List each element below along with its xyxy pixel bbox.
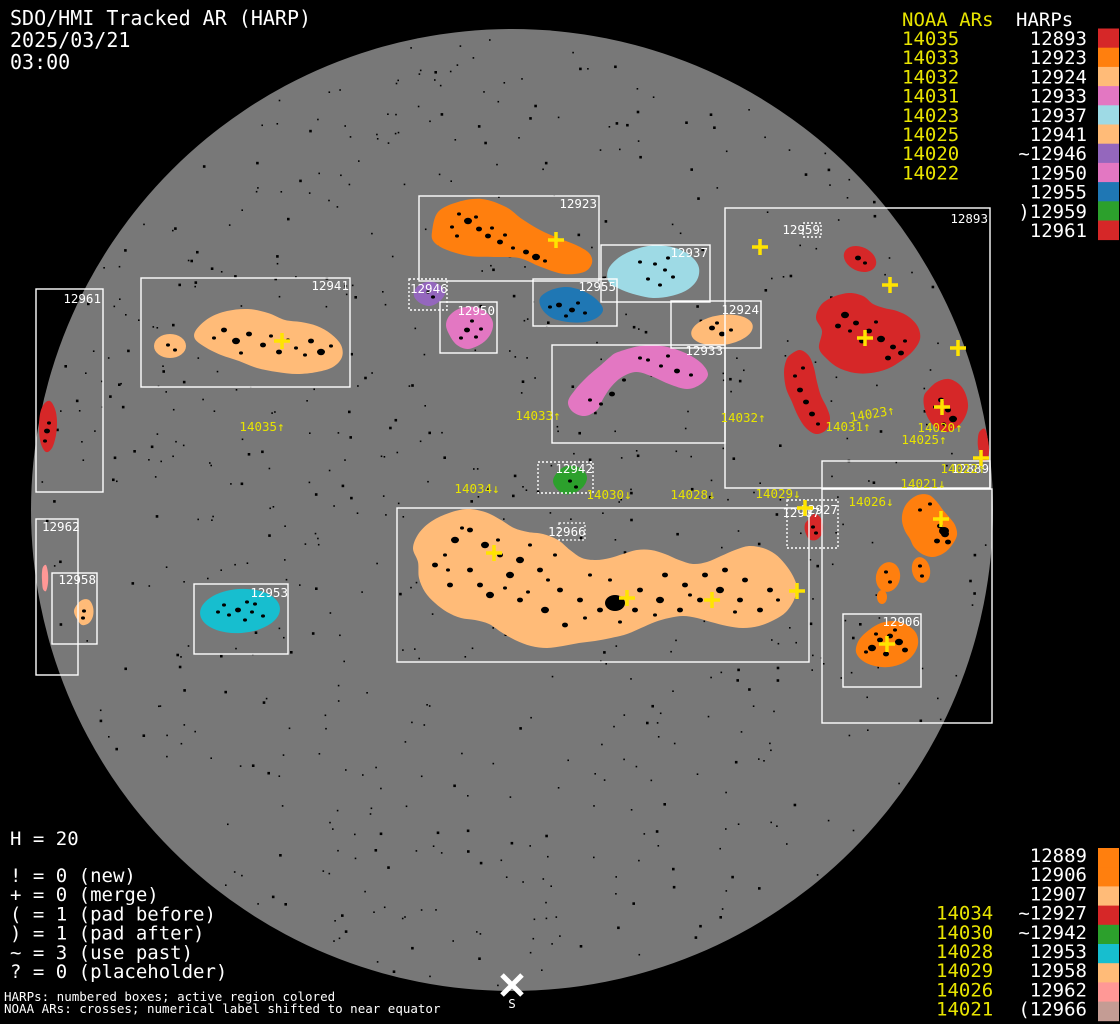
sunspot [803,400,809,405]
magnetogram-speckle [235,648,237,650]
magnetogram-speckle [636,766,638,768]
sunspot [658,283,662,286]
magnetogram-speckle [675,640,677,642]
magnetogram-speckle [184,724,186,726]
magnetogram-speckle [385,304,387,306]
magnetogram-speckle [354,296,357,299]
magnetogram-speckle [427,481,429,483]
magnetogram-speckle [937,698,939,700]
page-title: SDO/HMI Tracked AR (HARP) [10,6,311,30]
magnetogram-speckle [685,121,688,124]
magnetogram-speckle [183,581,185,583]
sunspot [656,597,664,603]
magnetogram-speckle [283,754,285,756]
magnetogram-speckle [257,187,259,189]
magnetogram-speckle [713,126,716,129]
magnetogram-speckle [317,538,319,540]
magnetogram-speckle [578,234,581,237]
magnetogram-speckle [876,594,878,596]
magnetogram-speckle [53,500,56,503]
magnetogram-speckle [439,174,441,176]
magnetogram-speckle [541,969,543,971]
sunspot [737,598,743,603]
magnetogram-speckle [637,455,640,458]
magnetogram-speckle [384,456,386,458]
sunspot [638,260,642,263]
sunspot [548,305,552,308]
magnetogram-speckle [198,357,200,359]
magnetogram-speckle [645,331,648,334]
magnetogram-speckle [483,91,485,93]
magnetogram-speckle [831,476,833,478]
magnetogram-speckle [841,677,843,679]
magnetogram-speckle [364,891,366,893]
magnetogram-speckle [866,697,868,699]
legend-swatch-12959 [1098,201,1119,221]
harp-box-label-12955: 12955 [578,279,616,294]
magnetogram-speckle [475,350,477,352]
sunspot [809,412,815,417]
magnetogram-speckle [593,805,595,807]
magnetogram-speckle [60,410,62,412]
magnetogram-speckle [837,496,839,498]
magnetogram-speckle [851,672,853,674]
magnetogram-speckle [404,916,406,918]
sunspot [638,356,642,359]
magnetogram-speckle [212,516,214,518]
magnetogram-speckle [800,533,802,535]
magnetogram-speckle [323,870,325,872]
magnetogram-speckle [115,748,118,751]
magnetogram-speckle [735,761,738,764]
legend-swatch-12958 [1098,963,1119,983]
sunspot [569,308,575,313]
magnetogram-speckle [697,197,700,200]
magnetogram-speckle [76,400,79,403]
magnetogram-speckle [767,211,769,213]
sunspot [890,345,896,350]
sunspot [646,277,650,280]
magnetogram-speckle [64,365,67,368]
harp-box-label-12966: 12966 [548,524,586,539]
magnetogram-speckle [334,920,336,922]
sunspot [481,542,489,548]
magnetogram-speckle [859,623,862,626]
magnetogram-speckle [605,663,607,665]
magnetogram-speckle [220,655,223,658]
magnetogram-speckle [114,306,116,308]
sunspot [553,553,557,556]
magnetogram-speckle [272,896,275,899]
magnetogram-speckle [287,218,290,221]
sunspot [517,598,523,603]
magnetogram-speckle [277,123,279,125]
magnetogram-speckle [470,500,473,503]
magnetogram-speckle [395,114,397,116]
magnetogram-speckle [127,350,130,353]
magnetogram-speckle [594,412,597,415]
magnetogram-speckle [467,830,470,833]
magnetogram-speckle [398,132,400,134]
sunspot [608,578,612,581]
sunspot [523,250,529,255]
magnetogram-speckle [411,722,413,724]
magnetogram-speckle [284,525,286,527]
noaa-ar-label-14034: 14034↓ [454,481,499,496]
magnetogram-speckle [543,878,545,880]
magnetogram-speckle [898,783,900,785]
magnetogram-speckle [183,445,185,447]
magnetogram-speckle [399,593,402,596]
sunspot [609,392,615,397]
magnetogram-speckle [268,534,271,537]
sunspot [537,568,543,573]
sunspot [574,485,578,488]
magnetogram-speckle [711,480,713,482]
magnetogram-speckle [409,385,411,387]
magnetogram-speckle [157,327,159,329]
magnetogram-speckle [371,233,373,235]
magnetogram-speckle [124,668,127,671]
sunspot [212,336,216,339]
magnetogram-speckle [42,481,44,483]
sunspot [450,225,454,228]
magnetogram-speckle [388,142,390,144]
magnetogram-speckle [480,933,482,935]
noaa-ar-label-14033: 14033↑ [515,408,560,423]
magnetogram-speckle [876,385,878,387]
sunspot [47,421,51,424]
magnetogram-speckle [534,919,536,921]
magnetogram-speckle [116,481,118,483]
legend-swatch-12950 [1098,163,1119,183]
magnetogram-speckle [530,952,532,954]
magnetogram-speckle [725,828,727,830]
magnetogram-speckle [240,765,242,767]
magnetogram-speckle [349,436,352,439]
magnetogram-speckle [429,976,431,978]
magnetogram-speckle [729,378,732,381]
magnetogram-speckle [425,229,427,231]
legend-swatch-12889 [1098,848,1119,868]
sunspot [476,227,482,232]
magnetogram-speckle [506,876,508,878]
magnetogram-speckle [489,39,491,41]
magnetogram-speckle [85,372,87,374]
sunspot [709,326,715,331]
magnetogram-speckle [149,585,151,587]
magnetogram-speckle [603,651,606,654]
magnetogram-speckle [853,830,855,832]
sunspot [715,321,719,324]
harp-box-label-12958: 12958 [58,572,96,587]
magnetogram-speckle [524,320,526,322]
magnetogram-speckle [503,518,505,520]
magnetogram-speckle [364,377,367,380]
magnetogram-speckle [637,88,639,90]
magnetogram-speckle [313,389,315,391]
magnetogram-speckle [831,400,833,402]
sunspot [82,609,86,612]
magnetogram-speckle [337,810,339,812]
magnetogram-speckle [405,741,407,743]
magnetogram-speckle [478,957,481,960]
sunspot [939,527,949,535]
magnetogram-speckle [349,184,351,186]
sunspot [261,614,265,617]
magnetogram-speckle [380,833,383,836]
sunspot [564,314,568,317]
magnetogram-speckle [269,508,271,510]
magnetogram-speckle [211,519,213,521]
magnetogram-speckle [605,220,608,223]
magnetogram-speckle [676,451,678,453]
sunspot [884,570,888,573]
magnetogram-speckle [551,465,553,467]
magnetogram-speckle [103,267,105,269]
magnetogram-speckle [241,305,243,307]
magnetogram-speckle [726,151,728,153]
magnetogram-speckle [550,512,552,514]
sunspot [835,324,841,329]
sunspot [546,578,550,581]
magnetogram-speckle [812,598,814,600]
magnetogram-speckle [162,370,165,373]
noaa-ar-label-14021: 14021↓ [900,476,945,491]
magnetogram-speckle [845,620,847,622]
magnetogram-speckle [557,426,559,428]
magnetogram-speckle [810,559,812,561]
magnetogram-speckle [783,276,785,278]
magnetogram-speckle [815,361,817,363]
magnetogram-speckle [221,271,223,273]
magnetogram-speckle [771,278,773,280]
magnetogram-speckle [578,432,581,435]
magnetogram-speckle [217,371,219,373]
magnetogram-speckle [416,582,418,584]
magnetogram-speckle [593,857,595,859]
magnetogram-speckle [721,672,723,674]
magnetogram-speckle [670,651,672,653]
sunspot [801,366,805,369]
magnetogram-speckle [393,970,396,973]
magnetogram-speckle [329,873,331,875]
harp-box-label-12961: 12961 [63,291,101,306]
magnetogram-speckle [344,459,346,461]
magnetogram-speckle [100,720,103,723]
sunspot [814,531,818,534]
magnetogram-speckle [437,832,440,835]
magnetogram-speckle [478,496,480,498]
magnetogram-speckle [290,651,293,654]
magnetogram-speckle [558,787,560,789]
sunspot [479,327,483,330]
magnetogram-speckle [309,432,311,434]
magnetogram-speckle [753,705,755,707]
magnetogram-speckle [197,519,199,521]
magnetogram-speckle [922,668,924,670]
magnetogram-speckle [176,654,179,657]
magnetogram-speckle [636,450,638,452]
sunspot [767,588,773,593]
magnetogram-speckle [646,722,649,725]
legend-code-line: ? = 0 (placeholder) [10,961,227,983]
sunspot [464,218,472,224]
magnetogram-speckle [658,845,660,847]
magnetogram-speckle [194,731,196,733]
magnetogram-speckle [680,233,682,235]
magnetogram-speckle [723,380,725,382]
magnetogram-speckle [375,849,378,852]
magnetogram-speckle [723,373,725,375]
magnetogram-speckle [623,759,625,761]
magnetogram-speckle [457,64,459,66]
magnetogram-speckle [556,916,558,918]
magnetogram-speckle [476,931,478,933]
sunspot [895,639,903,645]
magnetogram-speckle [450,71,452,73]
magnetogram-speckle [429,121,431,123]
magnetogram-speckle [708,716,710,718]
sunspot [464,328,470,333]
magnetogram-speckle [937,343,939,345]
magnetogram-speckle [587,68,589,70]
magnetogram-speckle [829,184,831,186]
legend-swatch-12955 [1098,182,1119,202]
sunspot [689,373,693,376]
magnetogram-speckle [672,690,674,692]
sunspot [556,303,562,308]
magnetogram-speckle [81,441,83,443]
sunspot [490,226,494,229]
magnetogram-speckle [639,156,642,159]
active-region-12962 [42,565,48,592]
magnetogram-speckle [529,117,532,120]
sunspot [883,652,889,657]
magnetogram-speckle [411,384,414,387]
magnetogram-speckle [956,675,958,677]
magnetogram-speckle [533,938,535,940]
magnetogram-speckle [133,450,136,453]
magnetogram-speckle [419,73,421,75]
magnetogram-speckle [696,305,699,308]
magnetogram-speckle [370,813,372,815]
harp-box-label-12941: 12941 [311,278,349,293]
sunspot [308,339,314,344]
sunspot [451,537,459,543]
magnetogram-speckle [330,612,332,614]
magnetogram-speckle [828,820,830,822]
magnetogram-speckle [143,734,146,737]
magnetogram-speckle [832,564,834,566]
magnetogram-speckle [616,645,618,647]
magnetogram-speckle [849,735,851,737]
magnetogram-speckle [248,453,251,456]
harp-box-label-12937: 12937 [670,245,708,260]
magnetogram-speckle [721,547,723,549]
sunspot [528,543,532,546]
sunspot [576,301,580,304]
magnetogram-speckle [673,886,676,889]
magnetogram-speckle [626,124,629,127]
magnetogram-speckle [758,758,760,760]
magnetogram-speckle [567,760,569,762]
sunspot [653,262,657,265]
magnetogram-speckle [759,482,761,484]
magnetogram-speckle [637,111,640,114]
magnetogram-speckle [426,704,428,706]
magnetogram-speckle [319,753,321,755]
magnetogram-speckle [256,191,258,193]
magnetogram-speckle [873,481,876,484]
noaa-ar-label-14028: 14028↓ [670,487,715,502]
sunspot [874,632,878,635]
magnetogram-speckle [547,856,549,858]
magnetogram-speckle [194,286,196,288]
magnetogram-speckle [518,137,520,139]
magnetogram-speckle [726,890,728,892]
magnetogram-speckle [817,874,819,876]
magnetogram-speckle [418,106,420,108]
magnetogram-speckle [842,524,844,526]
magnetogram-speckle [776,825,778,827]
magnetogram-speckle [787,340,789,342]
magnetogram-speckle [570,518,572,520]
magnetogram-speckle [325,728,327,730]
magnetogram-speckle [160,461,162,463]
magnetogram-speckle [758,543,761,546]
magnetogram-speckle [387,866,390,869]
magnetogram-speckle [397,80,399,82]
sunspot [446,568,450,571]
sunspot [898,351,904,356]
magnetogram-speckle [93,350,95,352]
magnetogram-speckle [271,412,273,414]
magnetogram-speckle [697,773,699,775]
magnetogram-speckle [384,907,386,909]
sunspot [885,356,891,361]
sunspot [474,215,478,218]
magnetogram-speckle [534,377,536,379]
magnetogram-speckle [493,763,495,765]
sunspot [467,568,473,573]
sunspot [868,645,876,651]
magnetogram-speckle [739,380,742,383]
sunspot [776,598,780,601]
magnetogram-speckle [267,772,270,775]
magnetogram-speckle [823,663,825,665]
magnetogram-speckle [415,328,417,330]
magnetogram-speckle [385,514,387,516]
noaa-ar-label-14032: 14032↑ [720,410,765,425]
sunspot [733,610,737,613]
sunspot [173,348,177,351]
magnetogram-speckle [279,100,281,102]
magnetogram-speckle [210,757,212,759]
magnetogram-speckle [124,249,127,252]
magnetogram-speckle [985,544,987,546]
sunspot [682,583,688,588]
magnetogram-speckle [638,140,640,142]
magnetogram-speckle [522,380,525,383]
magnetogram-speckle [651,705,654,708]
magnetogram-speckle [279,628,281,630]
magnetogram-speckle [873,201,876,204]
magnetogram-speckle [776,513,779,516]
magnetogram-speckle [318,173,320,175]
magnetogram-speckle [274,411,276,413]
magnetogram-speckle [504,82,506,84]
